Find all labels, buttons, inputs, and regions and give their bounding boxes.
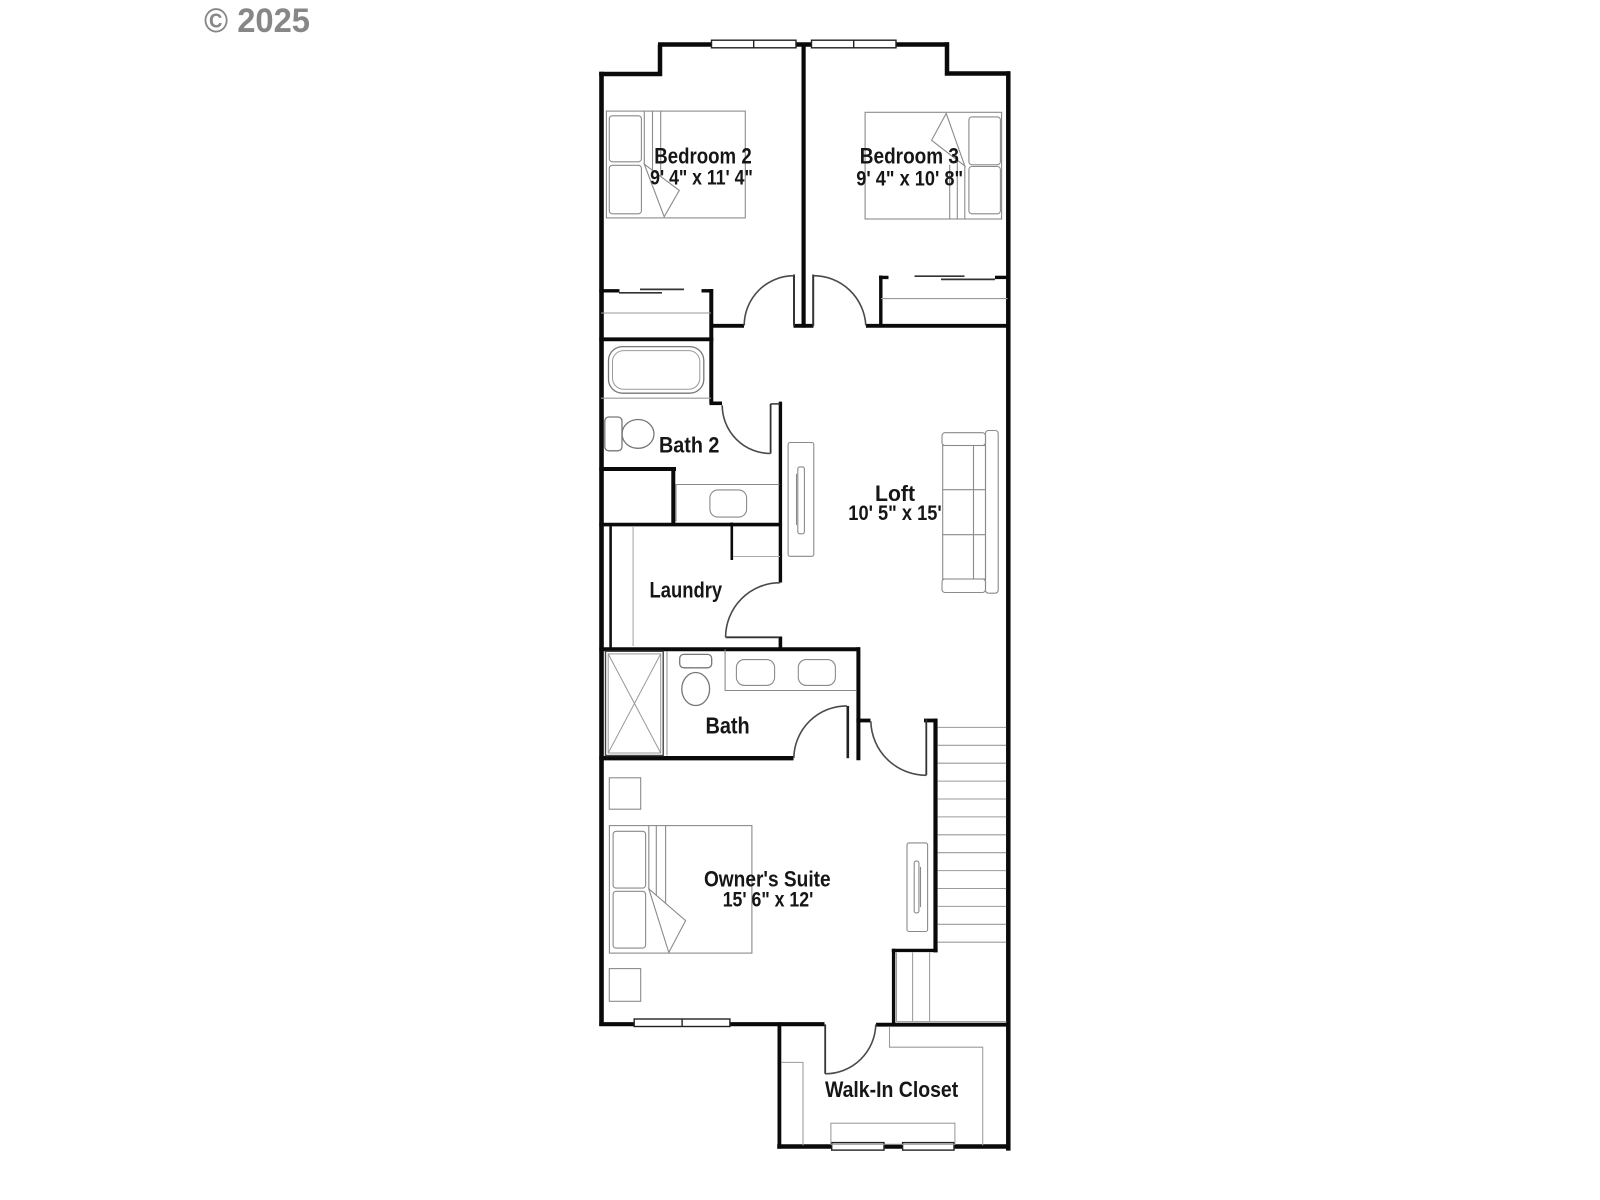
svg-text:© 2025: © 2025 [204,2,310,40]
svg-text:9' 4" x 10' 8": 9' 4" x 10' 8" [856,168,963,191]
svg-text:Bath 2: Bath 2 [659,432,720,457]
svg-text:Bedroom 2: Bedroom 2 [654,143,751,168]
svg-text:9' 4" x 11' 4": 9' 4" x 11' 4" [650,167,753,190]
svg-text:Laundry: Laundry [650,577,723,602]
svg-text:Bath: Bath [705,713,749,739]
svg-text:15' 6" x 12': 15' 6" x 12' [723,888,814,911]
svg-text:Walk-In Closet: Walk-In Closet [825,1077,959,1102]
svg-text:Bedroom 3: Bedroom 3 [860,143,959,168]
svg-text:10' 5" x 15': 10' 5" x 15' [848,502,941,525]
